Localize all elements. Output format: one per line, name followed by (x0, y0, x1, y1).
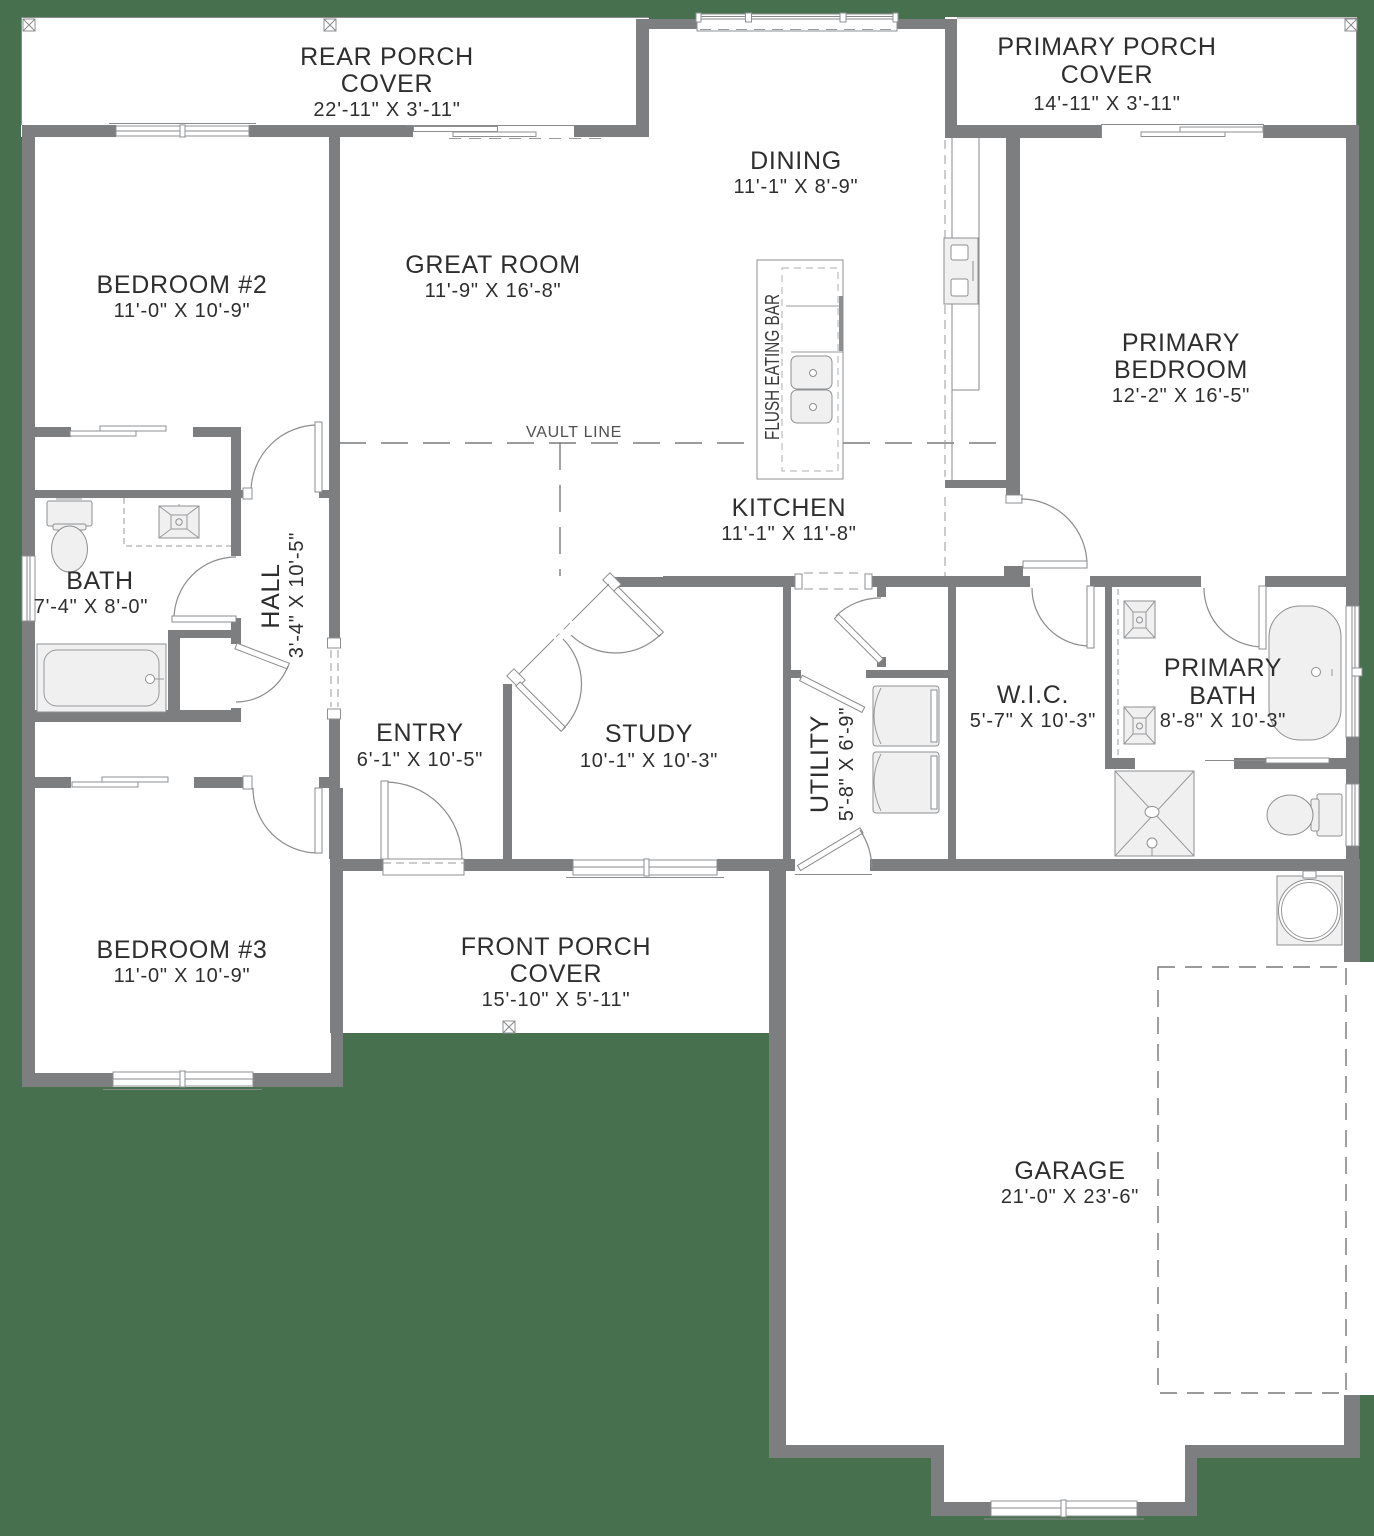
svg-text:12'-2" X 16'-5": 12'-2" X 16'-5" (1112, 385, 1250, 407)
svg-text:FLUSH EATING BAR: FLUSH EATING BAR (762, 294, 784, 440)
svg-text:3'-4" X 10'-5": 3'-4" X 10'-5" (286, 532, 308, 658)
svg-text:FRONT PORCH: FRONT PORCH (461, 933, 652, 961)
svg-text:ENTRY: ENTRY (376, 719, 464, 747)
svg-text:11'-0" X 10'-9": 11'-0" X 10'-9" (114, 300, 251, 322)
svg-text:UTILITY: UTILITY (806, 715, 834, 813)
svg-text:BATH: BATH (1189, 682, 1257, 710)
svg-text:11'-1" X 8'-9": 11'-1" X 8'-9" (734, 176, 859, 198)
svg-text:BATH: BATH (66, 567, 134, 595)
svg-text:8'-8" X 10'-3": 8'-8" X 10'-3" (1160, 710, 1286, 732)
svg-text:21'-0" X 23'-6": 21'-0" X 23'-6" (1001, 1186, 1139, 1208)
svg-text:GARAGE: GARAGE (1014, 1157, 1125, 1185)
svg-text:VAULT LINE: VAULT LINE (526, 424, 622, 441)
svg-text:7'-4" X 8'-0": 7'-4" X 8'-0" (34, 596, 149, 618)
svg-text:KITCHEN: KITCHEN (732, 494, 847, 522)
svg-text:11'-0" X 10'-9": 11'-0" X 10'-9" (114, 965, 251, 987)
svg-text:BEDROOM: BEDROOM (1114, 356, 1248, 384)
svg-text:PRIMARY: PRIMARY (1164, 654, 1282, 682)
svg-text:STUDY: STUDY (605, 720, 693, 748)
svg-text:BEDROOM #2: BEDROOM #2 (97, 271, 268, 299)
svg-text:COVER: COVER (1061, 61, 1153, 89)
svg-text:BEDROOM #3: BEDROOM #3 (97, 936, 268, 964)
svg-text:11'-9" X 16'-8": 11'-9" X 16'-8" (425, 280, 562, 302)
svg-text:5'-8" X 6'-9": 5'-8" X 6'-9" (836, 707, 858, 822)
svg-text:14'-11" X 3'-11": 14'-11" X 3'-11" (1033, 93, 1180, 115)
svg-text:COVER: COVER (341, 70, 433, 98)
svg-text:5'-7" X 10'-3": 5'-7" X 10'-3" (970, 710, 1096, 732)
svg-text:15'-10" X 5'-11": 15'-10" X 5'-11" (482, 989, 631, 1011)
svg-text:DINING: DINING (750, 147, 842, 175)
svg-text:10'-1" X 10'-3": 10'-1" X 10'-3" (580, 750, 718, 772)
svg-text:PRIMARY: PRIMARY (1122, 329, 1240, 357)
svg-text:GREAT ROOM: GREAT ROOM (405, 251, 581, 279)
svg-text:COVER: COVER (510, 960, 602, 988)
svg-text:PRIMARY PORCH: PRIMARY PORCH (997, 33, 1216, 61)
svg-text:22'-11" X 3'-11": 22'-11" X 3'-11" (313, 99, 460, 121)
svg-text:HALL: HALL (257, 563, 285, 628)
svg-text:REAR PORCH: REAR PORCH (300, 43, 474, 71)
svg-text:W.I.C.: W.I.C. (997, 681, 1069, 709)
svg-text:11'-1" X 11'-8": 11'-1" X 11'-8" (721, 523, 856, 545)
svg-text:6'-1" X 10'-5": 6'-1" X 10'-5" (357, 749, 483, 771)
